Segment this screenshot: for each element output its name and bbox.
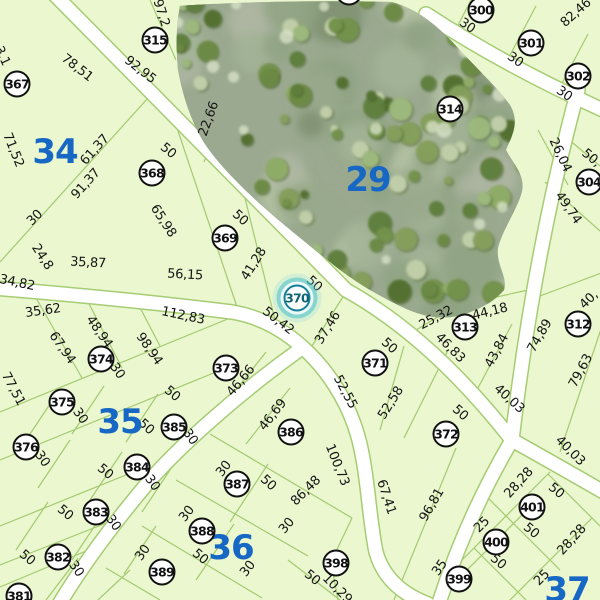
cadastral-map-canvas[interactable]: 97,292,9578,513,182,4630303071,5261,3791… <box>0 0 600 600</box>
parcel-marker-388[interactable]: 388 <box>189 518 216 545</box>
parcel-marker-367[interactable]: 367 <box>4 71 31 98</box>
parcel-marker-373[interactable]: 373 <box>213 355 240 382</box>
parcel-marker-371[interactable]: 371 <box>362 350 389 377</box>
parcel-marker-399[interactable]: 399 <box>446 566 473 593</box>
parcel-marker-400[interactable]: 400 <box>483 529 510 556</box>
parcel-marker-369[interactable]: 369 <box>212 225 239 252</box>
parcel-marker-315[interactable]: 315 <box>142 27 169 54</box>
parcel-marker-386[interactable]: 386 <box>278 419 305 446</box>
parcel-marker-313[interactable]: 313 <box>452 314 479 341</box>
parcel-marker-304[interactable]: 304 <box>576 169 600 196</box>
parcel-marker-387[interactable]: 387 <box>224 471 251 498</box>
parcel-marker-383[interactable]: 383 <box>83 499 110 526</box>
parcel-marker-368[interactable]: 368 <box>139 160 166 187</box>
parcel-marker-302[interactable]: 302 <box>565 63 592 90</box>
parcel-marker-301[interactable]: 301 <box>518 30 545 57</box>
parcel-marker-382[interactable]: 382 <box>45 544 72 571</box>
parcel-marker-372[interactable]: 372 <box>433 421 460 448</box>
parcel-marker-376[interactable]: 376 <box>13 434 40 461</box>
parcel-marker-385[interactable]: 385 <box>161 414 188 441</box>
parcel-marker-401[interactable]: 401 <box>519 494 546 521</box>
parcel-marker-370[interactable]: 370 <box>284 285 311 312</box>
parcel-marker-389[interactable]: 389 <box>149 559 176 586</box>
parcel-marker-312[interactable]: 312 <box>565 311 592 338</box>
parcel-marker-375[interactable]: 375 <box>49 389 76 416</box>
parcel-marker-384[interactable]: 384 <box>124 454 151 481</box>
parcel-marker-314[interactable]: 314 <box>437 96 464 123</box>
parcel-marker-398[interactable]: 398 <box>323 550 350 577</box>
parcel-marker-374[interactable]: 374 <box>88 346 115 373</box>
